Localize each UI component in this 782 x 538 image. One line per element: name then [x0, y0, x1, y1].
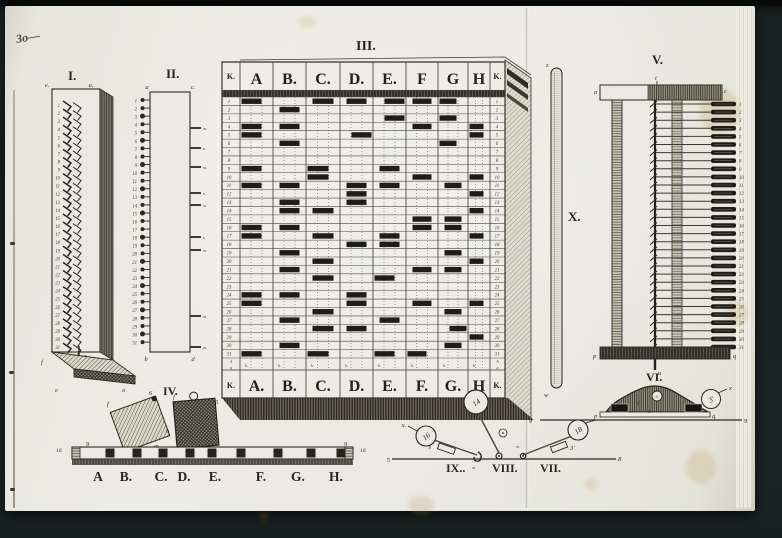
grid-bar	[352, 132, 372, 137]
label-e2: e	[55, 387, 58, 394]
pin-head	[141, 276, 145, 280]
figure-5-label: V.	[652, 52, 663, 67]
ruler-block	[274, 449, 283, 458]
pin-head	[141, 106, 145, 110]
ruler-block	[307, 449, 316, 458]
hook-number: 11	[56, 185, 60, 190]
grid-bar	[280, 317, 300, 322]
ruler-letter: D.	[177, 469, 190, 484]
grid-bar	[280, 124, 300, 129]
side-tick-label: m.	[203, 203, 207, 208]
grid-header-top: A	[251, 71, 263, 88]
rod	[551, 68, 562, 388]
pin-number: 26	[132, 301, 137, 306]
grid-bar	[347, 292, 367, 297]
tooth-number: 24	[739, 289, 744, 294]
grid-sub-k: g	[230, 365, 232, 370]
grid-bar	[445, 309, 462, 314]
grid-bar	[375, 351, 395, 356]
grid-sub-k: A	[495, 359, 499, 364]
grid-sub-mark: h.	[378, 363, 381, 368]
grid-bar	[440, 141, 457, 146]
hook-number: 26	[55, 306, 60, 311]
pin-number: 29	[132, 325, 137, 330]
grid-bar	[470, 191, 484, 196]
cam-block-right	[685, 404, 702, 412]
grid-bar	[470, 132, 484, 137]
label-x: x.	[400, 422, 406, 429]
label-d: d	[191, 356, 195, 363]
grid-row-number-left: 13	[227, 201, 232, 206]
grid-bar	[450, 326, 467, 331]
hook-number: 22	[55, 273, 60, 278]
grid-row-number-left: 10	[227, 176, 232, 181]
grid-bar	[445, 183, 462, 188]
grid-bar	[242, 124, 262, 129]
engraving: I. e. a. c. 1234567891011121314151617181…	[0, 0, 782, 538]
hook-number: 23	[55, 282, 60, 287]
grid-row-number-right: 3	[496, 117, 499, 122]
hook-number: 1	[58, 104, 60, 109]
label-e: e.	[45, 82, 50, 89]
grid-bar	[413, 225, 432, 230]
grid-row-number-right: 25	[495, 302, 500, 307]
pin-number: 24	[132, 285, 137, 290]
pin-head	[141, 300, 145, 304]
label-a: a	[594, 89, 597, 96]
figure-4-label: IV.	[163, 384, 178, 398]
grid-bar	[347, 191, 367, 196]
grid-row-number-right: 22	[495, 277, 500, 282]
pin-head	[140, 210, 145, 215]
grid-bar	[280, 267, 300, 272]
grid-bar	[280, 225, 300, 230]
pin-number: 19	[132, 245, 137, 250]
tooth-number: 4	[739, 127, 742, 132]
grid-bar	[347, 326, 367, 331]
grid-row-number-left: 9	[228, 167, 231, 172]
label-6: 6	[149, 390, 153, 397]
ruler-cap-left	[72, 447, 80, 459]
right-post	[672, 100, 682, 347]
hook-number: 30	[55, 338, 60, 343]
label-t: t	[655, 75, 657, 82]
ruler-letter: B.	[120, 469, 132, 484]
lever-arm-7	[523, 436, 572, 455]
tooth-number: 29	[739, 330, 744, 335]
pin-number: 14	[132, 204, 137, 209]
grid-sub-k: g	[497, 365, 499, 370]
grid-row-number-right: 8	[496, 159, 499, 164]
tooth-number: 28	[739, 322, 744, 327]
tooth-number: 23	[739, 281, 744, 286]
grid-header-bottom: K.	[227, 381, 235, 390]
grid-header-bottom: E.	[382, 378, 397, 395]
grid-bar	[242, 351, 262, 356]
pin-number: 7	[135, 148, 138, 153]
grid-row-number-left: 24	[227, 294, 232, 299]
grid-header-bottom: B.	[282, 378, 297, 395]
side-tick-label: m.	[203, 165, 207, 170]
ruler-letters: AB.C.D.E.F.G.H.	[93, 469, 343, 484]
label-p: p	[593, 413, 598, 420]
ruler-block	[208, 449, 217, 458]
ruler-letter: H.	[329, 469, 343, 484]
grid-row-number-right: 21	[495, 268, 500, 273]
grid-row-number-right: 31	[495, 353, 500, 358]
grid-row-number-left: 27	[227, 319, 232, 324]
grid-row-number-right: 12	[495, 193, 500, 198]
grid-bar	[470, 258, 484, 263]
grid-bar	[313, 233, 334, 238]
grid-row-number-right: 17	[495, 235, 500, 240]
label-L: L	[636, 401, 640, 407]
pin-head	[141, 130, 145, 134]
grid-bar	[380, 317, 400, 322]
grid-bar	[470, 124, 484, 129]
pin-head	[141, 251, 145, 255]
grid-bar	[413, 99, 432, 104]
grid-bar	[380, 233, 400, 238]
pin-number: 22	[132, 269, 137, 274]
pin-head	[141, 146, 145, 150]
grid-sub-mark: h.	[278, 363, 281, 368]
grid-bar	[413, 216, 432, 221]
grid-bar	[470, 334, 484, 339]
grid-header-bottom: G.	[445, 378, 461, 395]
label-p: p	[592, 353, 597, 360]
grid-row-number-right: 11	[495, 184, 499, 189]
grid-bar	[313, 326, 334, 331]
side-tick-label: m.	[203, 126, 207, 131]
side-tick-label: m.	[203, 314, 207, 319]
pin-number: 3	[135, 116, 138, 121]
grid-row-number-right: 6	[496, 142, 499, 147]
ruler-cap-right	[345, 447, 353, 459]
grid-bar	[380, 183, 400, 188]
hook-number: 24	[55, 290, 60, 295]
label-m-9: m.	[472, 465, 476, 470]
hook-number: 25	[55, 298, 60, 303]
cam-base-bar	[600, 412, 710, 417]
grid-bar	[385, 115, 405, 120]
figure-2-ticks: m.n.m.n.m.n.m.m.m.	[190, 126, 207, 350]
grid-row-number-right: 16	[495, 226, 500, 231]
tooth-number: 14	[739, 208, 744, 213]
grid-row-number-right: 28	[495, 327, 500, 332]
pin-number: 27	[132, 309, 137, 314]
grid-bar	[380, 242, 400, 247]
pin-number: 10	[132, 172, 137, 177]
grid-bar	[313, 258, 334, 263]
grid-bar	[242, 233, 262, 238]
grid-row-number-right: 5	[496, 134, 499, 139]
grid-row-number-right: 24	[495, 294, 500, 299]
figure-10-label: X.	[568, 209, 581, 224]
hook-number: 31	[55, 346, 60, 351]
grid-row-number-left: 3	[228, 117, 231, 122]
grid-bar	[445, 225, 462, 230]
pin-number: 18	[132, 237, 137, 242]
pin-head	[140, 235, 145, 240]
figure-1-label: I.	[68, 68, 76, 83]
grid-bar	[308, 166, 329, 171]
pin-head	[140, 332, 145, 337]
grid-bar	[242, 99, 262, 104]
grid-sub-mark: h.	[345, 363, 348, 368]
pin-head	[141, 98, 145, 102]
grid-header-top: H	[473, 71, 486, 88]
label-q: q.	[712, 413, 717, 420]
grid-bar	[440, 115, 457, 120]
tooth-number: 10	[739, 176, 744, 181]
pin-head	[141, 219, 145, 223]
ruler-block	[186, 449, 195, 458]
grid-bar	[280, 292, 300, 297]
label-3prime: 3′	[569, 445, 575, 452]
label-z: z	[545, 62, 549, 69]
figure-7-label: VII.	[540, 461, 561, 475]
tooth-number: 21	[739, 265, 744, 270]
grid-row-number-left: 4	[228, 125, 231, 130]
grid-bar	[470, 233, 484, 238]
grid-bars	[242, 99, 484, 357]
grid-row-number-right: 26	[495, 311, 500, 316]
top-bar-hatched	[648, 85, 722, 100]
ruler-letter: A	[93, 469, 103, 484]
grid-frame	[222, 62, 505, 398]
grid-bar	[242, 292, 262, 297]
pin-number: 28	[132, 317, 137, 322]
pin-number: 21	[132, 261, 137, 266]
pin-head	[140, 283, 145, 288]
grid-bar	[385, 99, 405, 104]
cam-block-left	[611, 404, 628, 412]
pin-number: 17	[132, 229, 137, 234]
tooth-number: 3	[739, 119, 742, 124]
pin-number: 16	[132, 220, 137, 225]
grid-header-top: E.	[382, 71, 397, 88]
grid-row-number-left: 31	[227, 353, 232, 358]
label-w: w	[544, 392, 549, 399]
side-tick-label: m.	[203, 345, 207, 350]
grid-row-number-left: 1	[228, 100, 230, 105]
grid-row-number-right: 10	[495, 176, 500, 181]
pin-number: 11	[133, 180, 137, 185]
grid-bar	[280, 343, 300, 348]
tooth-number: 27	[739, 314, 744, 319]
pin-number: 4	[135, 124, 138, 129]
hook-number: 27	[55, 314, 60, 319]
pin-number: 2	[135, 107, 138, 112]
grid-lines	[222, 62, 505, 398]
grid-row-number-right: 1	[496, 100, 498, 105]
grid-bar	[413, 301, 432, 306]
small-circle-dot	[502, 432, 504, 434]
grid-row-number-left: 18	[227, 243, 232, 248]
ruler-hatch-strip	[72, 459, 353, 465]
ruler-block	[106, 449, 115, 458]
tooth-number: 8	[739, 160, 742, 165]
tooth-number: 18	[739, 241, 744, 246]
grid-bar	[313, 275, 334, 280]
grid-row-number-right: 14	[495, 209, 500, 214]
hook-number: 29	[55, 330, 60, 335]
hook-number: 17	[55, 233, 60, 238]
comb-teeth: 1234567891011121314151617181920212223242…	[650, 101, 744, 351]
label-x: x	[728, 385, 732, 392]
pivot-roller-dot	[498, 455, 500, 457]
hook-number: 14	[55, 209, 60, 214]
pin-number: 9	[135, 164, 138, 169]
grid-bar	[308, 174, 329, 179]
grid-header-top: G	[447, 71, 460, 88]
grid-row-number-left: 28	[227, 327, 232, 332]
base-bar	[600, 347, 730, 359]
grid-bar	[280, 200, 300, 205]
pin-head	[141, 267, 145, 271]
grid-sub-mark: h.	[443, 363, 446, 368]
pin-number: 1	[135, 99, 137, 104]
figure-2-pins: 1234567891011121314151617181920212223242…	[132, 98, 150, 347]
grid-row-number-right: 19	[495, 252, 500, 257]
pivot-hook	[474, 452, 481, 461]
pin-number: 5	[135, 132, 138, 137]
pin-number: 31	[132, 342, 137, 347]
hook-number: 18	[55, 241, 60, 246]
grid-bar	[313, 208, 334, 213]
grid-header-top: D.	[349, 71, 365, 88]
label-c: c	[724, 88, 727, 95]
grid-row-number-right: 15	[495, 218, 500, 223]
pin-head	[141, 324, 145, 328]
grid-bar	[347, 99, 367, 104]
tooth-number: 7	[739, 152, 742, 157]
grid-bar	[347, 301, 367, 306]
grid-row-number-left: 17	[227, 235, 232, 240]
tooth-number: 26	[739, 306, 744, 311]
grid-header-bottom: C.	[315, 378, 331, 395]
tilted-square-2	[172, 390, 219, 448]
ruler-letter: G.	[291, 469, 305, 484]
pin-head	[141, 243, 145, 247]
grid-bar	[445, 250, 462, 255]
pin-number: 30	[132, 333, 137, 338]
grid-bar	[413, 174, 432, 179]
grid-bar	[280, 250, 300, 255]
grid-row-number-left: 30	[227, 344, 232, 349]
hook-number: 28	[55, 322, 60, 327]
tooth-number: 11	[739, 184, 743, 189]
pin-number: 6	[135, 140, 138, 145]
grid-bar	[413, 267, 432, 272]
grid-row-number-left: 12	[227, 193, 232, 198]
ruler-block	[237, 449, 246, 458]
label-9-right: 9	[744, 418, 748, 425]
grid-3d-side	[505, 60, 531, 420]
figure-6-label: VI.	[646, 370, 662, 384]
tooth-number: 22	[739, 273, 744, 278]
grid-bar	[313, 99, 334, 104]
grid-row-number-left: 20	[227, 260, 232, 265]
figure-8-label: VIII.	[492, 461, 518, 475]
hook-number: 10	[55, 177, 60, 182]
cam-top-letter: G	[656, 394, 659, 399]
hook-number: 12	[55, 193, 60, 198]
tilted-square-1	[110, 395, 170, 452]
label-c: c.	[191, 84, 196, 91]
pin-number: 13	[132, 196, 137, 201]
label-8: 8	[618, 456, 622, 463]
grid-row-number-left: 5	[228, 134, 231, 139]
grid-header-bottom: A.	[249, 378, 265, 395]
grid-header-top: K.	[493, 72, 501, 81]
label-5: 5	[387, 457, 391, 464]
grid-bar	[313, 309, 334, 314]
figure-5-comb: V. t a c 1234567891011121314151617181920…	[592, 52, 744, 377]
grid-row-number-left: 6	[228, 142, 231, 147]
grid-row-number-left: 16	[227, 226, 232, 231]
label-a: a.	[89, 82, 94, 89]
grid-row-number-right: 13	[495, 201, 500, 206]
tooth-number: 1	[739, 103, 741, 108]
figure-3-label: III.	[356, 39, 376, 54]
tooth-number: 19	[739, 249, 744, 254]
grid-row-number-right: 30	[495, 344, 500, 349]
hook-number: 13	[55, 201, 60, 206]
grid-row-number-right: 18	[495, 243, 500, 248]
ruler-letter: C.	[154, 469, 167, 484]
grid-row-number-right: 7	[496, 151, 499, 156]
grid-header-top: F	[417, 71, 427, 88]
grid-row-number-left: 22	[227, 277, 232, 282]
pin-head	[141, 122, 145, 126]
left-post	[612, 100, 622, 347]
ruler-block	[337, 449, 346, 458]
grid-row-number-left: 29	[227, 336, 232, 341]
label-q: q	[733, 353, 737, 360]
hook-number: 15	[55, 217, 60, 222]
grid-bar	[440, 99, 457, 104]
pin-head	[140, 138, 145, 143]
pin-number: 12	[132, 188, 137, 193]
pin-number: 20	[132, 253, 137, 258]
grid-row-number-right: 27	[495, 319, 500, 324]
label-a: a	[145, 84, 148, 91]
grid-bar	[280, 107, 300, 112]
grid-sub-mark: h.	[473, 363, 476, 368]
label-18-left: 18.	[56, 448, 63, 454]
grid-row-number-left: 11	[227, 184, 231, 189]
hook-number: 16	[55, 225, 60, 230]
grid-bar	[347, 200, 367, 205]
pin-head	[140, 162, 145, 167]
grid-bar	[380, 166, 400, 171]
grid-bar	[413, 124, 432, 129]
grid-row-number-right: 20	[495, 260, 500, 265]
grid-row-number-left: 14	[227, 209, 232, 214]
label-m-7: m.	[516, 444, 520, 449]
pin-head	[140, 259, 145, 264]
grid-bar	[445, 267, 462, 272]
pin-head	[141, 179, 145, 183]
grid-header-bottom: F.	[416, 378, 428, 395]
pin-number: 15	[132, 212, 137, 217]
label-b: b	[144, 356, 148, 363]
figure-10-rod: z X. w	[544, 62, 581, 399]
pin-head	[141, 227, 145, 231]
grid-bar	[242, 132, 262, 137]
